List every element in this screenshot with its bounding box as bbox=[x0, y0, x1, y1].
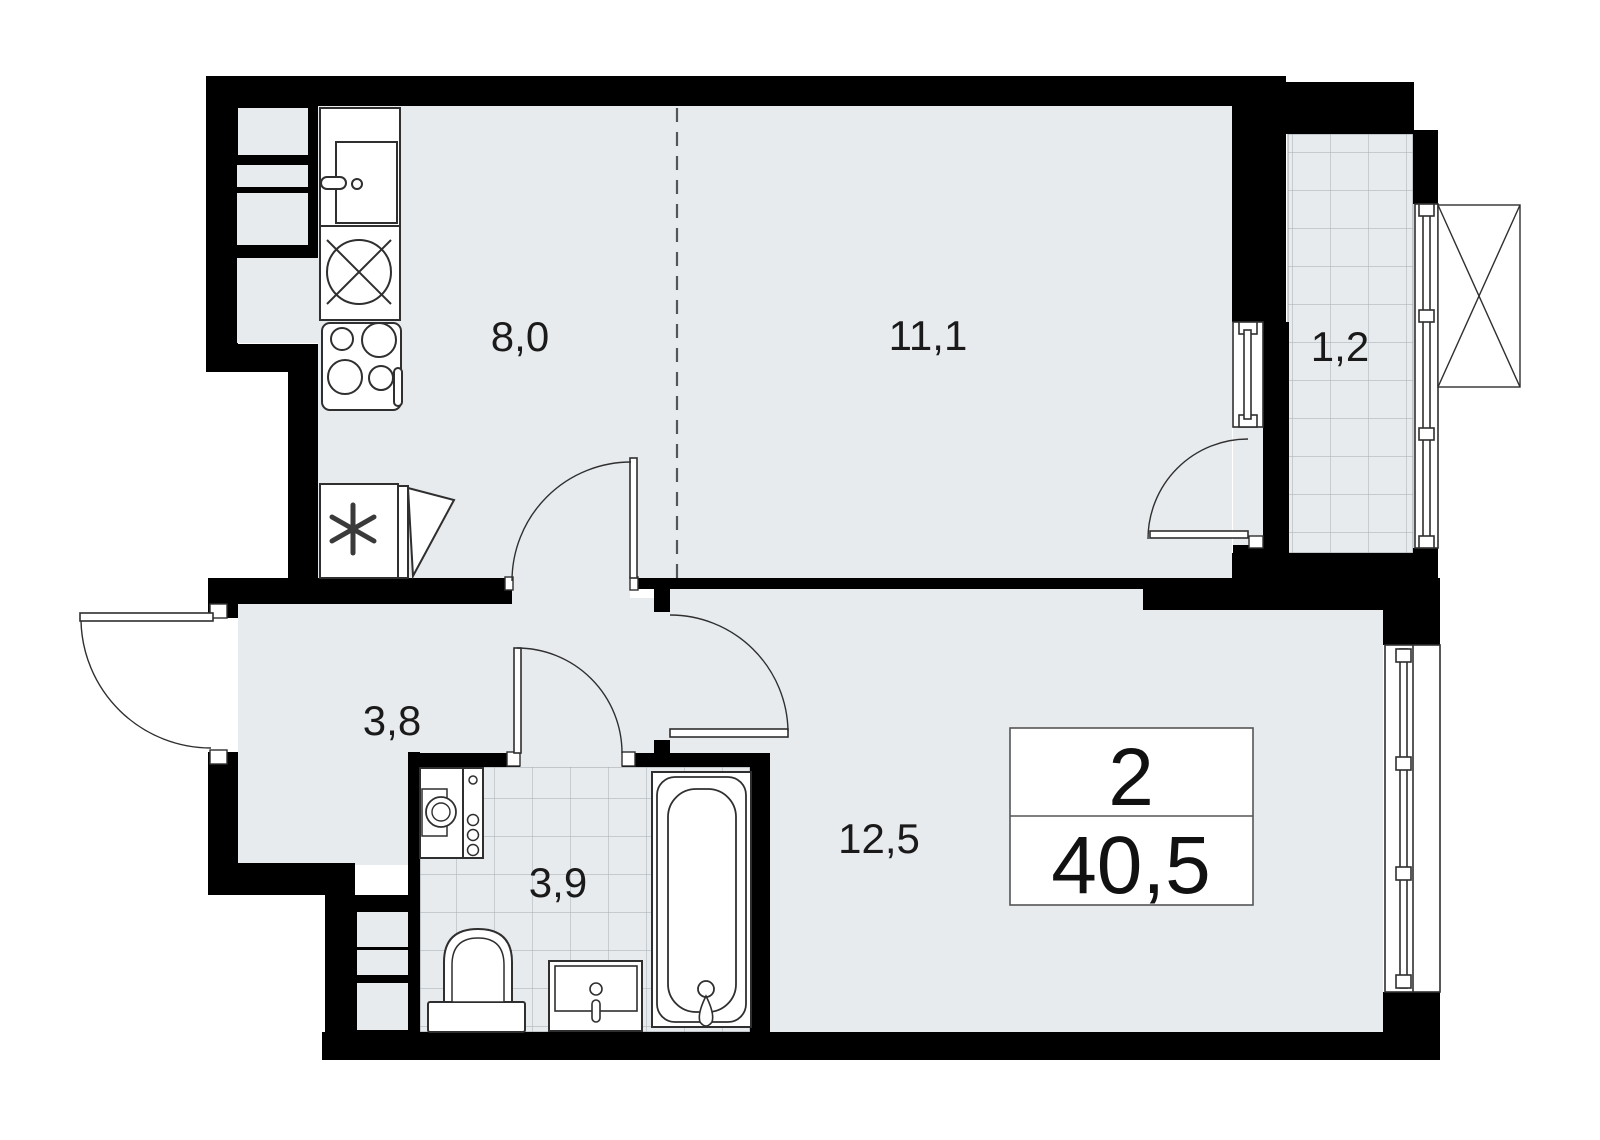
balcony-door-threshold bbox=[1233, 427, 1263, 547]
niche-5 bbox=[357, 912, 408, 947]
niche-4 bbox=[237, 258, 320, 343]
bedroom-door-threshold bbox=[654, 610, 670, 742]
wall-right-above-window bbox=[1383, 580, 1440, 645]
wall-livingroom-balcony bbox=[1232, 76, 1286, 322]
niche-3 bbox=[237, 193, 308, 245]
bedroom-window-icon bbox=[1385, 645, 1440, 992]
wall-entry-lower bbox=[208, 752, 238, 895]
niche-7 bbox=[357, 983, 408, 1030]
balcony-window-icon bbox=[1233, 322, 1263, 427]
floor-plan-page: 8,0 11,1 1,2 3,8 3,9 12,5 2 40,5 bbox=[0, 0, 1600, 1140]
wall-bedroom-door-stub-bottom bbox=[654, 740, 670, 767]
kitchen-door-threshold bbox=[512, 578, 630, 608]
wall-inner-left bbox=[288, 344, 318, 580]
washing-machine-icon bbox=[420, 768, 483, 858]
balcony-glazing-icon bbox=[1415, 204, 1438, 548]
bathtub-icon bbox=[652, 772, 751, 1027]
rooms-count-value: 2 bbox=[1108, 732, 1154, 823]
apartment-stamp: 2 40,5 bbox=[1010, 728, 1253, 911]
wash-basin-icon bbox=[549, 961, 642, 1031]
wall-shaft-left bbox=[325, 895, 355, 1060]
wall-bathroom-right bbox=[750, 753, 770, 1032]
entry-jamb-bottom bbox=[210, 750, 227, 764]
kitchen-sink-icon bbox=[320, 108, 400, 226]
balcony-area-label: 1,2 bbox=[1311, 323, 1369, 370]
wall-bathroom-left bbox=[408, 752, 420, 1037]
niche-2 bbox=[237, 165, 308, 187]
niche-6 bbox=[357, 950, 408, 975]
wall-room-divider-thin bbox=[630, 578, 1232, 589]
hallway-area-label: 3,8 bbox=[363, 697, 421, 744]
livingroom-area-label: 11,1 bbox=[889, 312, 968, 359]
kitchen-area-label: 8,0 bbox=[491, 313, 549, 360]
wall-balcony-left-strip bbox=[1263, 322, 1289, 553]
ac-basket-x-icon bbox=[1438, 205, 1520, 387]
round-appliance-icon bbox=[320, 226, 400, 320]
wall-hall-kitchen bbox=[208, 578, 512, 604]
bathroom-door-threshold bbox=[520, 753, 622, 767]
bathroom-jamb-left bbox=[507, 752, 520, 766]
wall-top bbox=[206, 76, 1245, 106]
wall-balcony-right-upper-stub bbox=[1413, 130, 1438, 204]
bathroom-jamb-right bbox=[622, 752, 635, 766]
wall-bedroom-door-stub-top bbox=[654, 588, 670, 612]
kitchen-livingroom-floor bbox=[318, 104, 1232, 578]
wall-under-balcony-door bbox=[1233, 545, 1263, 580]
balcony-jamb bbox=[1249, 536, 1263, 548]
kitchen-jamb-right bbox=[630, 577, 638, 590]
wall-bottom bbox=[322, 1032, 1440, 1060]
bathroom-area-label: 3,9 bbox=[529, 859, 587, 906]
floor-plan-canvas: 8,0 11,1 1,2 3,8 3,9 12,5 2 40,5 bbox=[0, 0, 1600, 1140]
bedroom-area-label: 12,5 bbox=[838, 815, 920, 862]
total-area-value: 40,5 bbox=[1051, 820, 1211, 911]
stove-4-burner-icon bbox=[322, 323, 402, 410]
niche-1 bbox=[238, 108, 308, 155]
entry-door-swing-icon bbox=[80, 613, 213, 748]
